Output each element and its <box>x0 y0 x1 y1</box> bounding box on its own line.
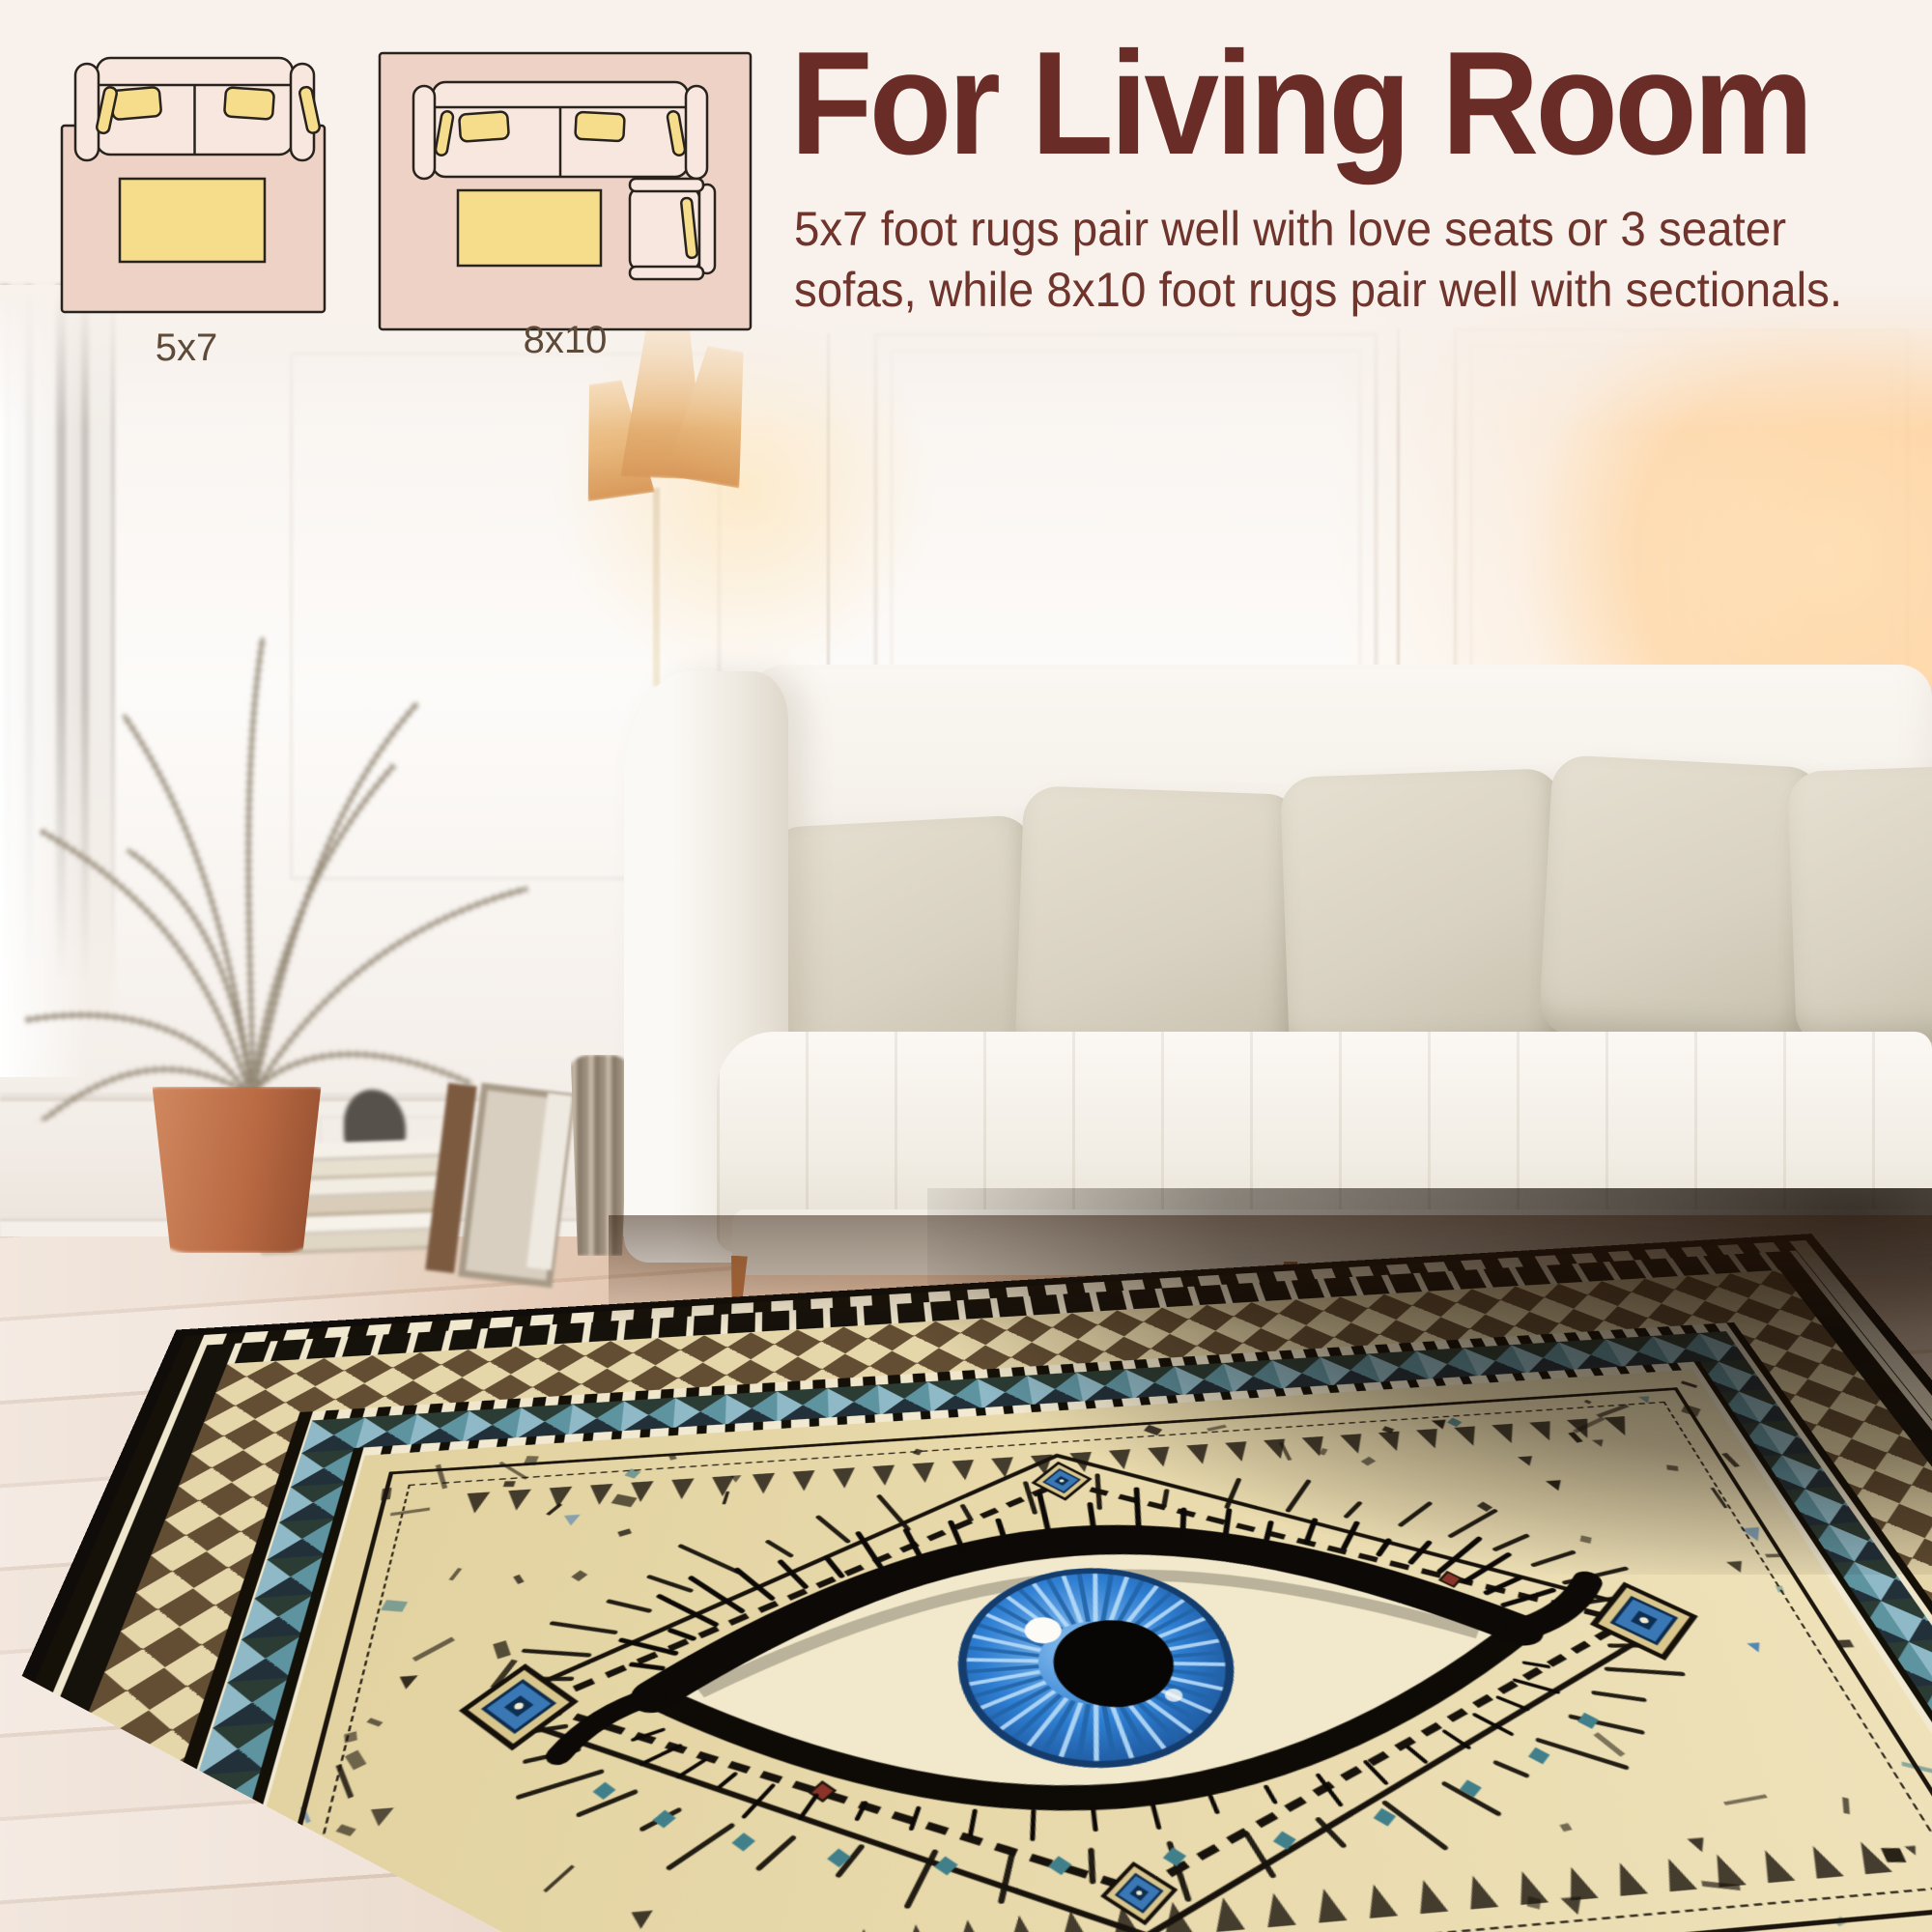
size-label-8x10: 8x10 <box>377 319 753 362</box>
loveseat-pictogram <box>75 58 321 160</box>
under-sofa-shadow <box>609 1215 1932 1331</box>
dried-palm-plant <box>0 483 541 1121</box>
description-line: sofas, while 8x10 foot rugs pair well wi… <box>794 260 1914 321</box>
size-label-5x7: 5x7 <box>27 327 346 370</box>
size-diagram-5x7 <box>27 29 346 357</box>
sofa-pictogram <box>413 82 707 179</box>
throw-pillow <box>1280 768 1570 1063</box>
armchair-pictogram <box>630 179 715 279</box>
product-image: 5x7 8x10 For Living Room 5x7 foot rugs p… <box>0 0 1932 1932</box>
throw-pillow <box>1787 764 1932 1047</box>
size-diagram-8x10 <box>377 43 753 333</box>
coffee-table-pictogram <box>120 179 265 262</box>
coffee-table-pictogram <box>458 190 601 266</box>
description-line: 5x7 foot rugs pair well with love seats … <box>794 199 1914 260</box>
description-text: 5x7 foot rugs pair well with love seats … <box>794 199 1914 321</box>
throw-pillow <box>1539 754 1824 1048</box>
floor-lamp-pole <box>653 488 660 686</box>
page-title: For Living Room <box>790 19 1810 188</box>
